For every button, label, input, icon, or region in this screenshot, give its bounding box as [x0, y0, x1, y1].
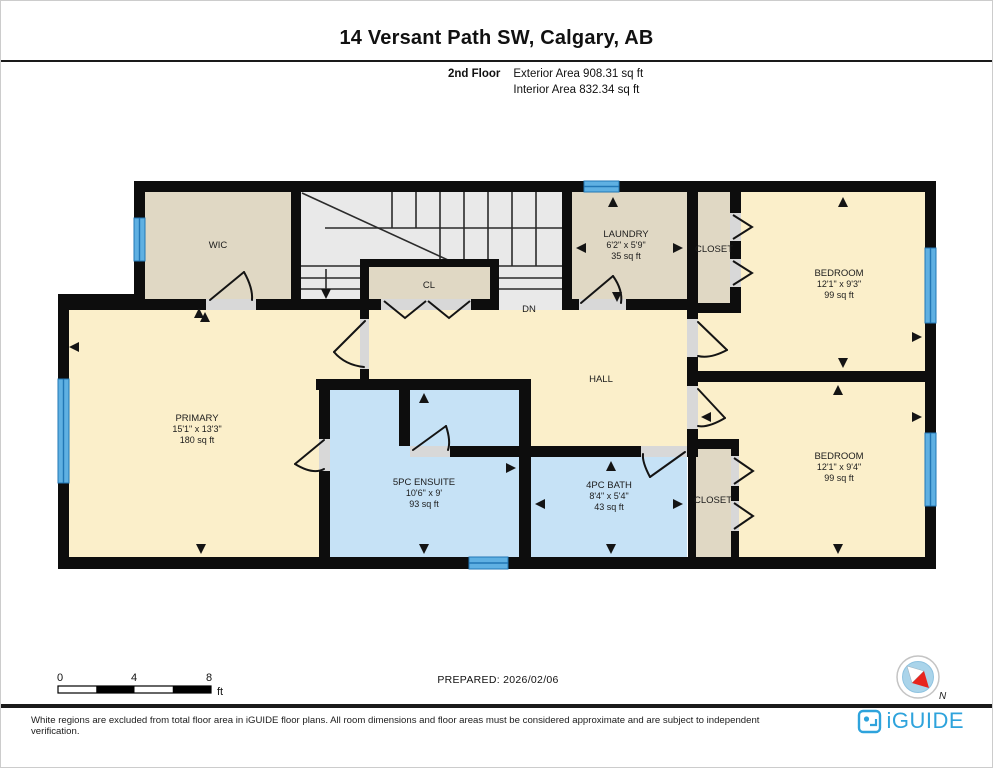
svg-text:99 sq ft: 99 sq ft [824, 290, 854, 300]
window-ensuite [469, 557, 508, 569]
label-primary: PRIMARY [175, 413, 219, 424]
scale-4: 4 [131, 672, 137, 684]
label-wic: WIC [209, 240, 228, 251]
label-closet2: CLOSET [694, 495, 732, 506]
label-laundry: LAUNDRY [603, 229, 649, 240]
room-ensuite [330, 390, 519, 557]
window-wic [134, 218, 145, 261]
window-bedroom1 [925, 248, 936, 323]
svg-text:93 sq ft: 93 sq ft [409, 499, 439, 509]
label-cl: CL [423, 280, 435, 291]
label-dn: DN [522, 304, 536, 315]
compass-north-label: N [939, 691, 947, 702]
svg-text:12'1" x 9'4": 12'1" x 9'4" [817, 462, 861, 472]
window-bedroom2 [925, 433, 936, 506]
svg-text:10'6" x 9': 10'6" x 9' [406, 488, 442, 498]
label-bedroom2: BEDROOM [814, 451, 863, 462]
label-bath: 4PC BATH [586, 480, 632, 491]
svg-text:43 sq ft: 43 sq ft [594, 502, 624, 512]
label-bedroom1: BEDROOM [814, 268, 863, 279]
svg-text:99 sq ft: 99 sq ft [824, 473, 854, 483]
window-primary [58, 379, 69, 483]
label-hall: HALL [589, 374, 613, 385]
scale-unit: ft [217, 686, 223, 698]
window-laundry [584, 181, 619, 192]
footer-disclaimer: White regions are excluded from total fl… [31, 715, 791, 737]
svg-text:12'1" x 9'3": 12'1" x 9'3" [817, 279, 861, 289]
floorplan-drawing: WIC CL DN HALL LAUNDRY 6'2" x 5'9" 35 sq… [1, 1, 993, 768]
scale-0: 0 [57, 672, 63, 684]
prepared-date: PREPARED: 2026/02/06 [437, 674, 558, 686]
floorplan-page: 14 Versant Path SW, Calgary, AB 2nd Floo… [0, 0, 993, 768]
svg-text:180 sq ft: 180 sq ft [180, 435, 215, 445]
label-closet1: CLOSET [695, 244, 733, 255]
iguide-logo: iGUIDE [857, 708, 964, 734]
scale-bar: 0 4 8 ft [57, 672, 223, 698]
scale-8: 8 [206, 672, 212, 684]
svg-text:6'2" x 5'9": 6'2" x 5'9" [606, 240, 645, 250]
footer-divider [1, 704, 992, 708]
svg-text:8'4" x 5'4": 8'4" x 5'4" [589, 491, 628, 501]
compass-icon: N [897, 656, 947, 702]
iguide-logo-icon [857, 709, 882, 734]
svg-text:15'1" x 13'3": 15'1" x 13'3" [172, 424, 221, 434]
label-ensuite: 5PC ENSUITE [393, 477, 455, 488]
iguide-logo-text: iGUIDE [886, 708, 964, 734]
svg-text:35 sq ft: 35 sq ft [611, 251, 641, 261]
